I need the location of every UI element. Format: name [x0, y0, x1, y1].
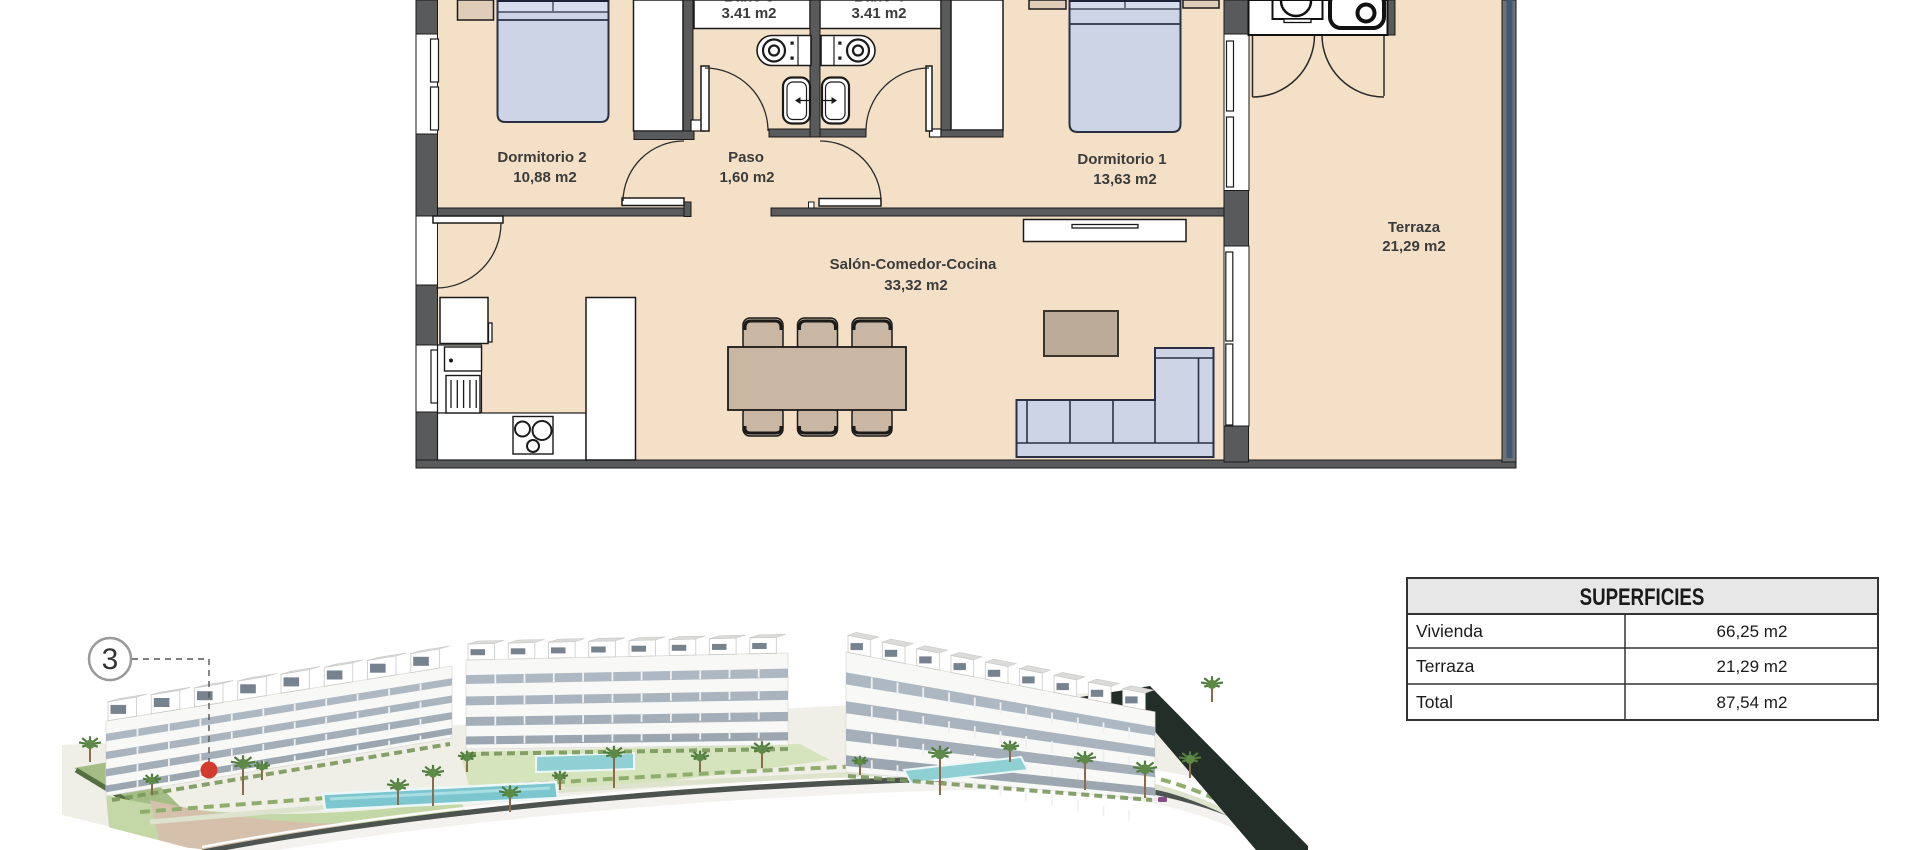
svg-text:87,54 m2: 87,54 m2 [1717, 693, 1788, 712]
svg-text:Salón-Comedor-Cocina: Salón-Comedor-Cocina [830, 256, 997, 273]
svg-text:10,88 m2: 10,88 m2 [513, 169, 576, 186]
svg-text:Dormitorio 1: Dormitorio 1 [1077, 151, 1166, 168]
svg-text:21,29 m2: 21,29 m2 [1382, 238, 1445, 255]
svg-text:Terraza: Terraza [1388, 219, 1441, 236]
svg-text:33,32 m2: 33,32 m2 [884, 277, 947, 294]
svg-text:Total: Total [1416, 692, 1453, 712]
svg-text:Paso: Paso [728, 149, 764, 166]
svg-text:Dormitorio 2: Dormitorio 2 [497, 149, 586, 166]
svg-text:3.41 m2: 3.41 m2 [721, 5, 776, 22]
svg-text:66,25 m2: 66,25 m2 [1717, 622, 1788, 641]
svg-text:3.41 m2: 3.41 m2 [851, 5, 906, 22]
svg-text:Vivienda: Vivienda [1416, 621, 1483, 641]
svg-text:3: 3 [102, 643, 119, 676]
svg-text:21,29 m2: 21,29 m2 [1717, 657, 1788, 676]
svg-text:SUPERFICIES: SUPERFICIES [1580, 584, 1705, 611]
svg-text:1,60 m2: 1,60 m2 [719, 169, 774, 186]
svg-text:Terraza: Terraza [1416, 656, 1475, 676]
svg-text:Baño 3: Baño 3 [724, 0, 774, 6]
svg-text:Baño 4: Baño 4 [854, 0, 905, 6]
svg-text:13,63 m2: 13,63 m2 [1093, 171, 1156, 188]
